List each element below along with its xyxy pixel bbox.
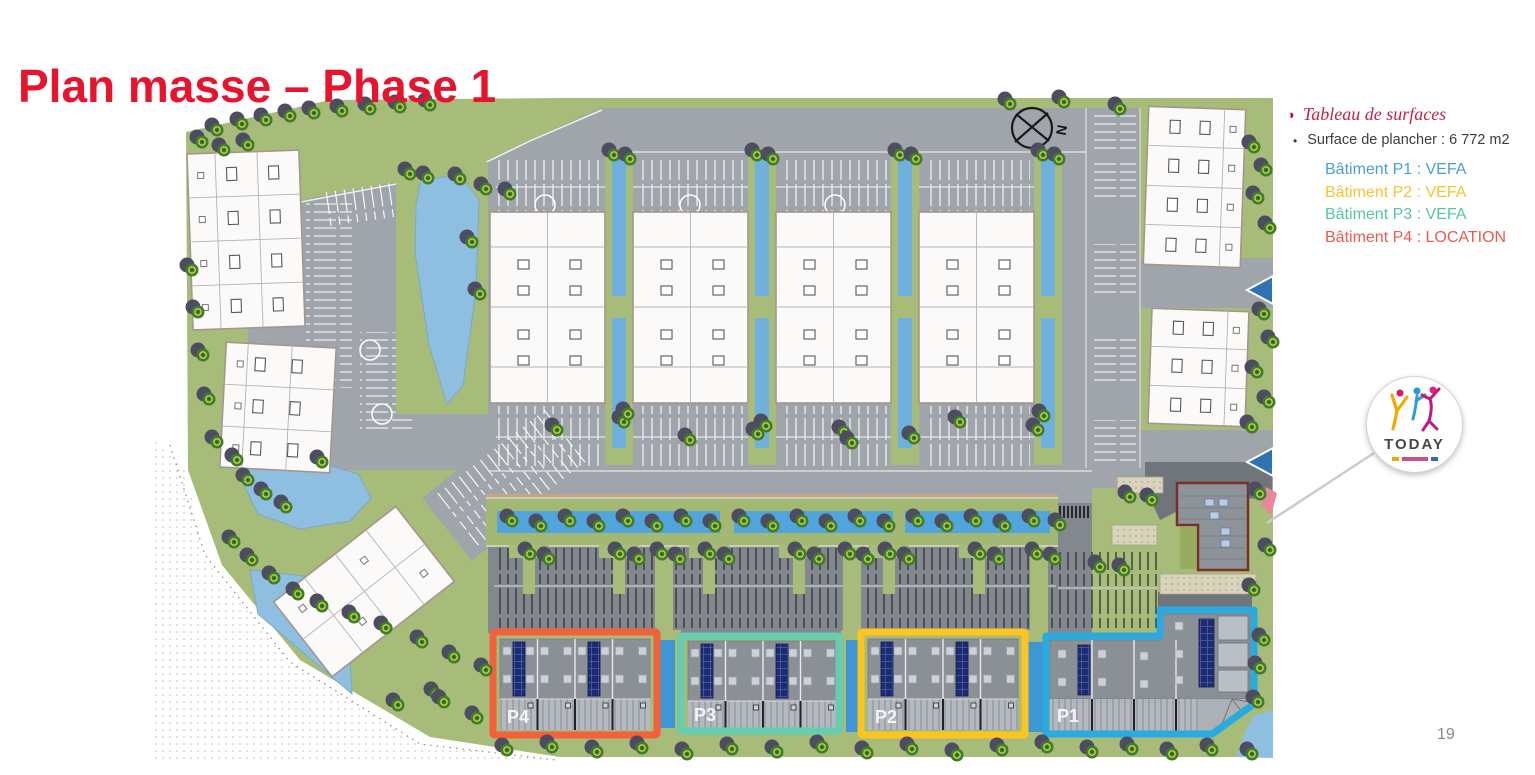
- legend-arrow-icon: ◗: [1288, 108, 1296, 121]
- bullet-icon: •: [1293, 132, 1297, 150]
- today-logo: TODAY: [1366, 376, 1463, 473]
- legend-batiment-p2: Bâtiment P2 : VEFA: [1325, 182, 1535, 205]
- page-number: 19: [1437, 726, 1455, 744]
- label-p3: P3: [694, 705, 716, 725]
- label-p2: P2: [875, 707, 897, 727]
- slide-title: Plan masse – Phase 1: [18, 59, 496, 113]
- legend-batiment-p1: Bâtiment P1 : VEFA: [1325, 159, 1535, 182]
- label-p4: P4: [507, 707, 529, 727]
- today-logo-text: TODAY: [1367, 436, 1462, 453]
- legend-batiment-p3: Bâtiment P3 : VEFA: [1325, 204, 1535, 227]
- label-p1: P1: [1057, 706, 1079, 726]
- surface-line: Surface de plancher : 6 772 m2: [1307, 132, 1509, 150]
- legend-batiment-p4: Bâtiment P4 : LOCATION: [1325, 227, 1535, 250]
- today-logo-tagline: [1367, 457, 1462, 461]
- legend-heading: Tableau de surfaces: [1303, 104, 1446, 125]
- legend-panel: ◗ Tableau de surfaces • Surface de planc…: [1288, 104, 1535, 249]
